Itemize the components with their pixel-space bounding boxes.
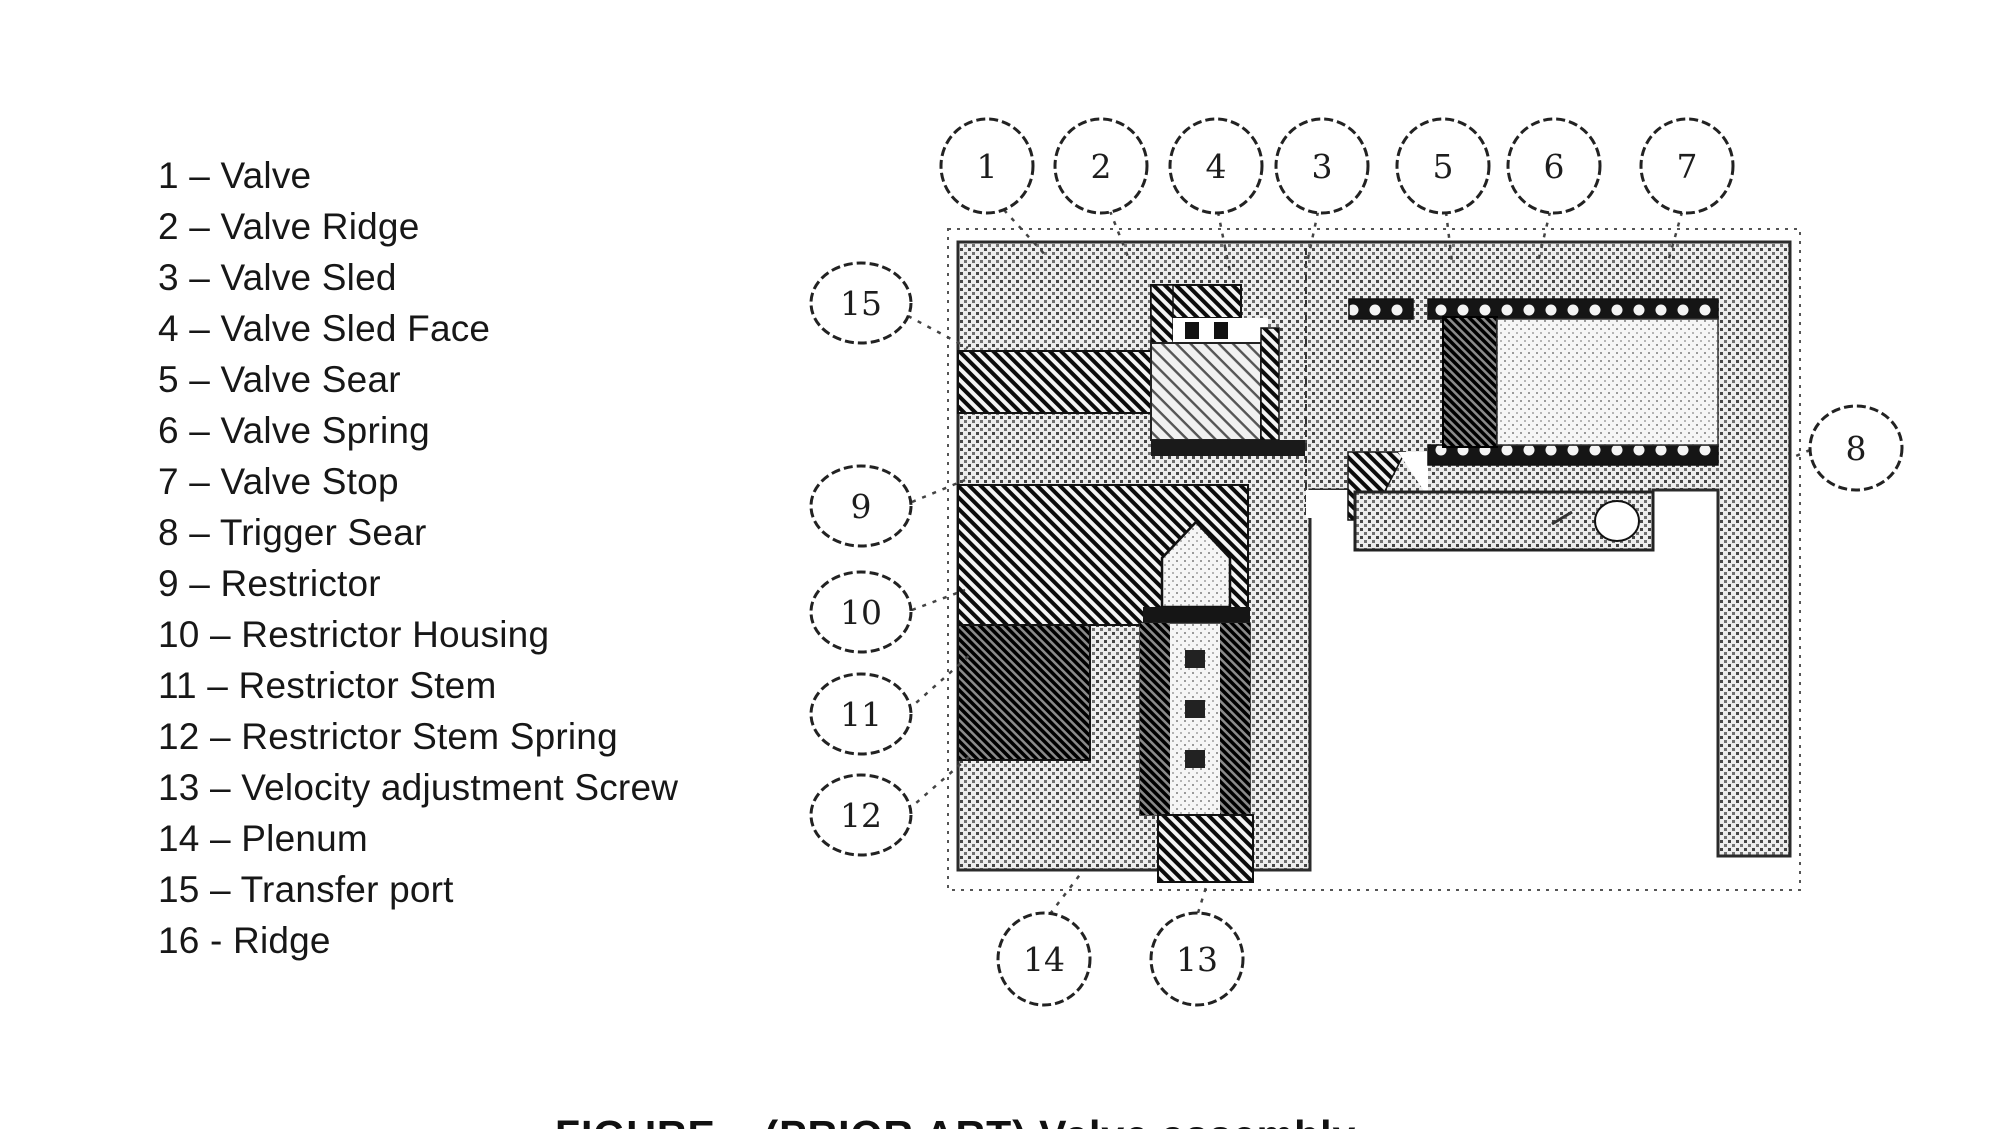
callout-4-label: 4 — [1206, 147, 1227, 186]
stem-seg-2 — [1185, 700, 1205, 718]
ridge-nub-right — [1214, 322, 1228, 339]
stem-seg-3 — [1185, 750, 1205, 768]
callout-3: 3 — [1276, 119, 1368, 213]
figure-caption: FIGURE – (PRIOR ART) Valve assembly — [555, 1112, 1345, 1129]
callout-14: 14 — [998, 913, 1090, 1005]
callout-2: 2 — [1055, 119, 1147, 213]
callout-5: 5 — [1397, 119, 1489, 213]
callout-1-label: 1 — [977, 147, 998, 186]
callout-8-label: 8 — [1846, 429, 1867, 468]
valve-sled-rail — [1261, 328, 1279, 440]
callout-11: 11 — [811, 674, 911, 754]
callout-9-label: 9 — [851, 487, 872, 526]
callout-11-label: 11 — [840, 695, 882, 734]
stem-slot-right — [1220, 623, 1250, 815]
valve-spring-interior — [1497, 319, 1718, 445]
callout-7-label: 7 — [1677, 147, 1698, 186]
callout-9: 9 — [811, 466, 911, 546]
callout-13: 13 — [1151, 913, 1243, 1005]
stem-slot-left — [1140, 623, 1170, 815]
callout-5-label: 5 — [1433, 147, 1454, 186]
callout-8: 8 — [1810, 406, 1902, 490]
callout-2-label: 2 — [1091, 147, 1112, 186]
callout-6-label: 6 — [1544, 147, 1565, 186]
valve-sear-column — [1443, 317, 1497, 447]
velocity-screw — [1158, 815, 1253, 882]
callout-13-label: 13 — [1176, 940, 1218, 979]
transfer-port-hatch — [958, 351, 1151, 413]
callout-15-label: 15 — [840, 284, 882, 323]
valve-sled-face-lip — [1151, 285, 1173, 343]
patent-figure-page: 1 – Valve 2 – Valve Ridge 3 – Valve Sled… — [0, 0, 2013, 1129]
callout-10-label: 10 — [840, 593, 882, 632]
callout-14-label: 14 — [1023, 940, 1065, 979]
callout-12: 12 — [811, 775, 911, 855]
restrictor-housing-bar — [1143, 607, 1250, 623]
valve-ridge-rail — [1349, 299, 1413, 319]
callout-3-label: 3 — [1312, 147, 1333, 186]
valve-sled-body — [1151, 343, 1261, 440]
callout-10: 10 — [811, 572, 911, 652]
callout-15: 15 — [811, 263, 911, 343]
valve-cross-section-drawing: 1 2 4 3 5 6 7 — [0, 0, 2013, 1129]
callout-7: 7 — [1641, 119, 1733, 213]
valve-sled-base-bar — [1151, 440, 1305, 456]
callout-1: 1 — [941, 119, 1033, 213]
sear-pocket — [1306, 490, 1348, 518]
callout-4: 4 — [1170, 119, 1262, 213]
trigger-sear-hole — [1595, 501, 1639, 541]
callout-6: 6 — [1508, 119, 1600, 213]
ridge-nub-left — [1185, 322, 1199, 339]
callout-12-label: 12 — [840, 796, 882, 835]
restrictor-stem-hatch — [958, 625, 1090, 760]
stem-seg-1 — [1185, 650, 1205, 668]
